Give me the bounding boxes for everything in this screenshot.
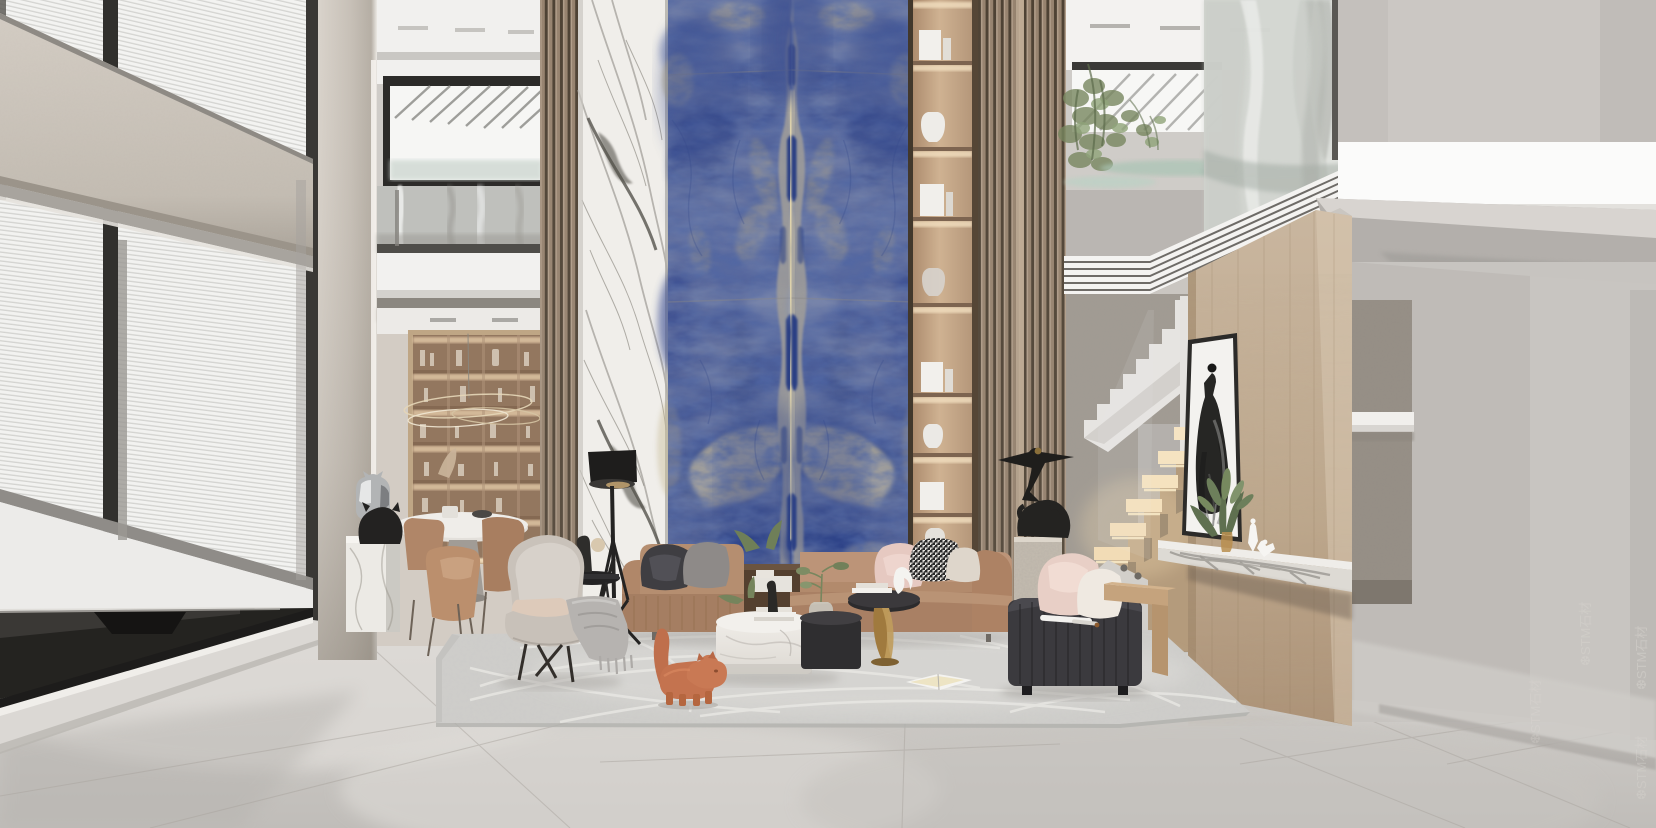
svg-text:❆STM石材: ❆STM石材: [1578, 602, 1593, 666]
svg-text:❆STM石材: ❆STM石材: [1528, 680, 1543, 744]
svg-text:❆STM石材: ❆STM石材: [1634, 626, 1649, 690]
svg-text:❆STM石材: ❆STM石材: [1634, 736, 1649, 800]
